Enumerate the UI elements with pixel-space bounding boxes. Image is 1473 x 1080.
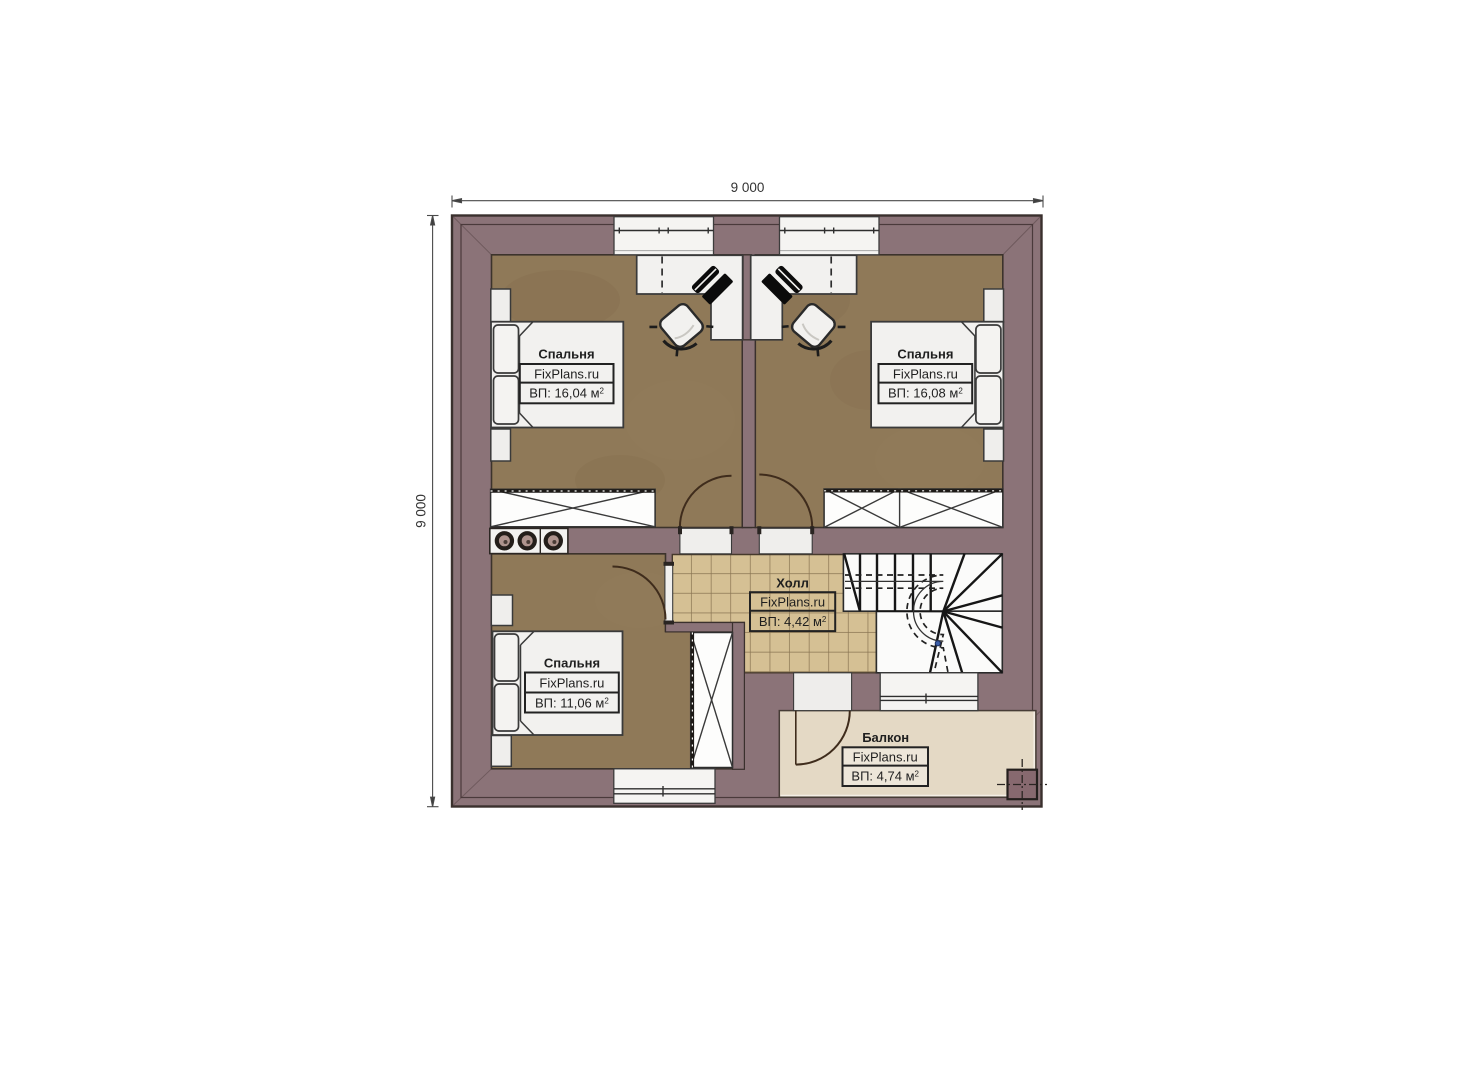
svg-text:Спальня: Спальня <box>538 347 594 362</box>
svg-text:Балкон: Балкон <box>862 730 909 745</box>
svg-text:FixPlans.ru: FixPlans.ru <box>893 367 958 382</box>
svg-text:ВП: 16,08 м2: ВП: 16,08 м2 <box>888 385 963 400</box>
svg-text:Холл: Холл <box>776 576 809 591</box>
svg-text:FixPlans.ru: FixPlans.ru <box>760 595 825 610</box>
svg-text:Спальня: Спальня <box>897 347 953 362</box>
svg-text:FixPlans.ru: FixPlans.ru <box>534 367 599 382</box>
svg-text:ВП: 4,74 м2: ВП: 4,74 м2 <box>851 769 919 784</box>
svg-text:9 000: 9 000 <box>414 494 429 528</box>
svg-text:ВП: 16,04 м2: ВП: 16,04 м2 <box>529 385 604 400</box>
svg-text:FixPlans.ru: FixPlans.ru <box>853 750 918 765</box>
svg-text:9 000: 9 000 <box>731 180 765 195</box>
svg-text:ВП: 4,42 м2: ВП: 4,42 м2 <box>759 614 827 629</box>
svg-text:ВП: 11,06 м2: ВП: 11,06 м2 <box>535 695 609 710</box>
svg-text:Спальня: Спальня <box>544 656 600 671</box>
svg-text:FixPlans.ru: FixPlans.ru <box>539 676 604 691</box>
